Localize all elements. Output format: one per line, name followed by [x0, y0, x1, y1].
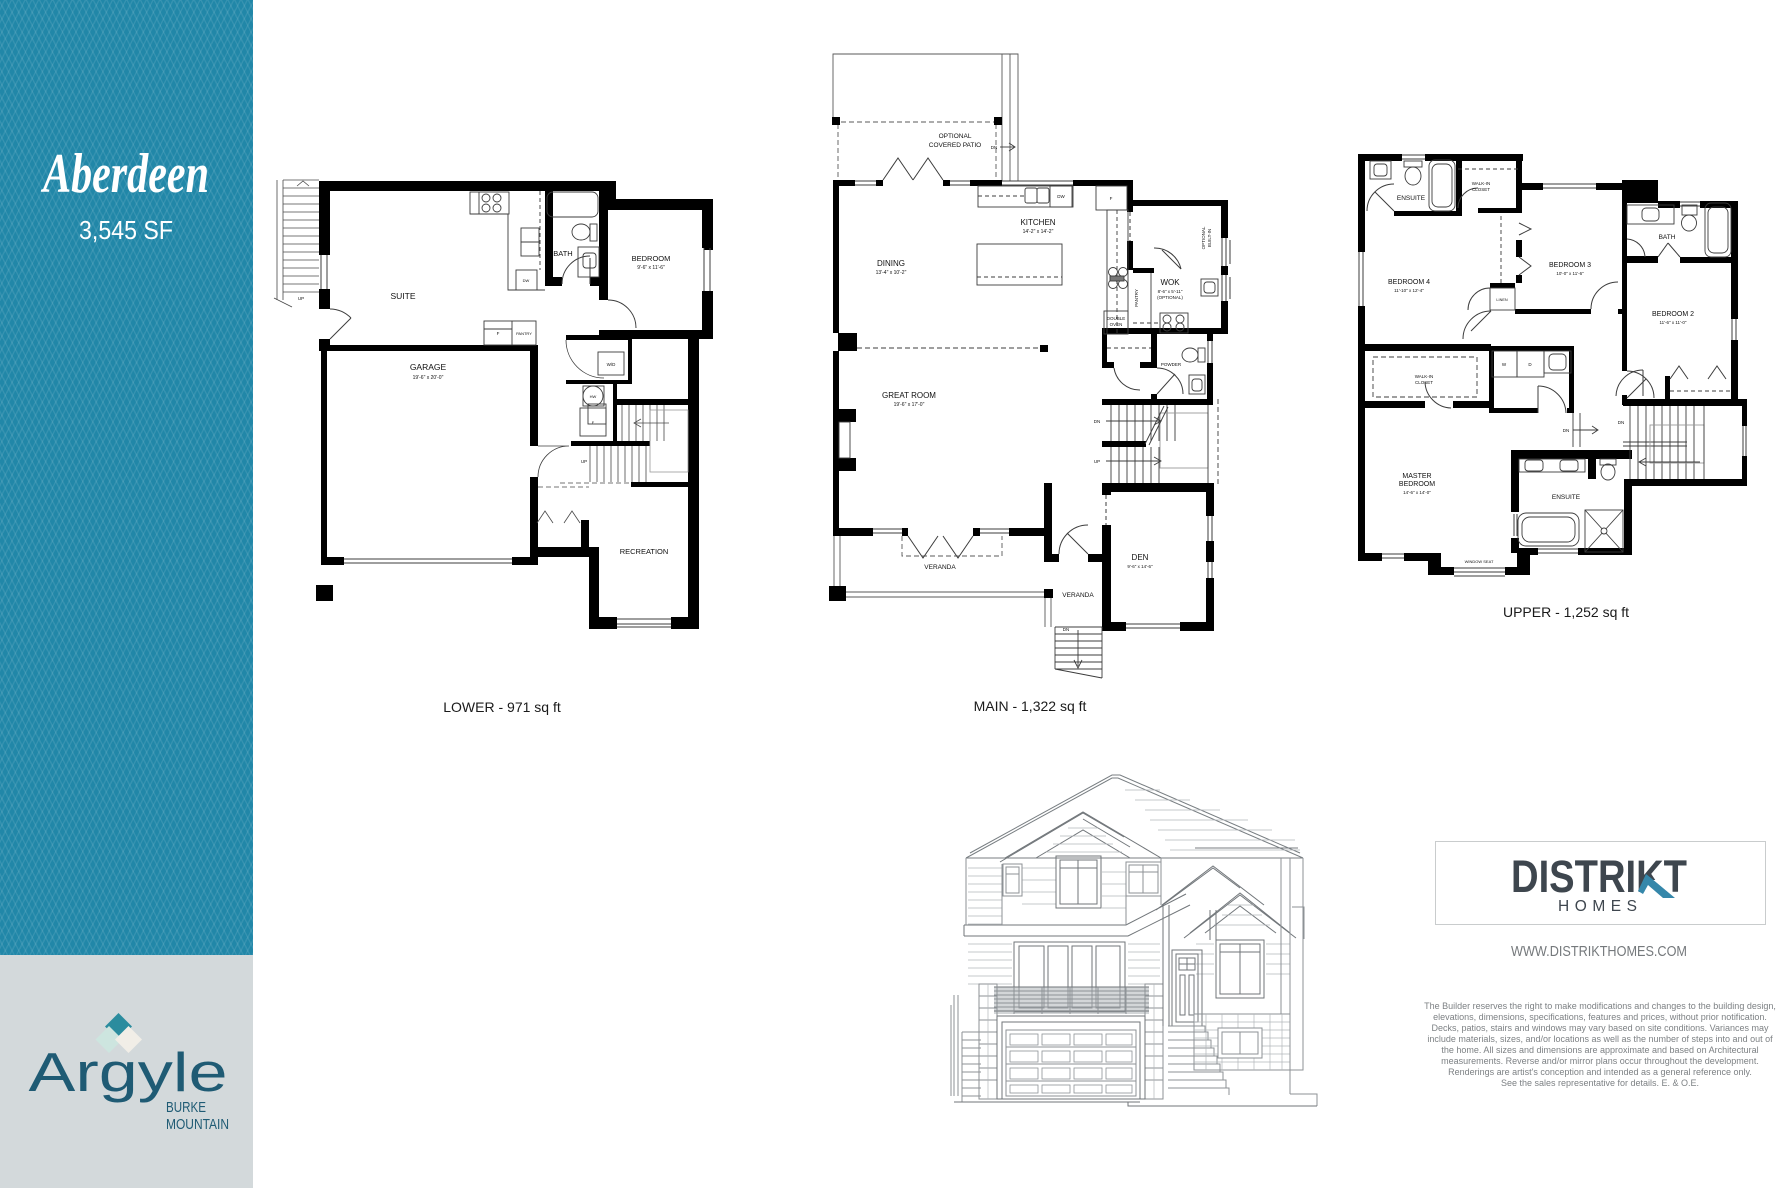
svg-text:11'-10" x 12'-4": 11'-10" x 12'-4" — [1394, 288, 1424, 293]
svg-text:CLOSET: CLOSET — [1415, 380, 1433, 385]
svg-text:WOK: WOK — [1160, 278, 1180, 287]
svg-text:9'-6" x 14'-6": 9'-6" x 14'-6" — [1127, 564, 1153, 569]
svg-text:ENSUITE: ENSUITE — [1552, 494, 1581, 501]
svg-text:14'-2" x 14'-2": 14'-2" x 14'-2" — [1023, 229, 1054, 235]
svg-text:BEDROOM 3: BEDROOM 3 — [1549, 262, 1591, 269]
svg-text:DOUBLE: DOUBLE — [1107, 316, 1126, 321]
svg-text:RECREATION: RECREATION — [620, 547, 669, 556]
svg-text:MASTER: MASTER — [1402, 473, 1431, 480]
svg-text:19'-6" x 20'-0": 19'-6" x 20'-0" — [413, 375, 444, 381]
svg-text:POWDER: POWDER — [1161, 362, 1182, 367]
svg-text:Aberdeen: Aberdeen — [41, 143, 209, 205]
svg-text:DN: DN — [1063, 627, 1070, 632]
svg-text:(OPTIONAL): (OPTIONAL) — [1157, 295, 1183, 300]
svg-text:3,545 SF: 3,545 SF — [79, 215, 173, 245]
svg-text:GREAT ROOM: GREAT ROOM — [882, 391, 936, 400]
svg-text:GARAGE: GARAGE — [410, 362, 447, 372]
svg-text:WALK-IN: WALK-IN — [1415, 374, 1434, 379]
svg-text:LINEN: LINEN — [1496, 298, 1507, 302]
svg-text:WWW.DISTRIKTHOMES.COM: WWW.DISTRIKTHOMES.COM — [1511, 943, 1687, 960]
svg-text:WINDOW SEAT: WINDOW SEAT — [1465, 559, 1494, 564]
svg-text:BEDROOM: BEDROOM — [632, 254, 671, 263]
svg-text:MOUNTAIN: MOUNTAIN — [166, 1116, 229, 1133]
svg-text:OVEN: OVEN — [1110, 322, 1123, 327]
svg-text:13'-4" x 10'-2": 13'-4" x 10'-2" — [876, 270, 907, 276]
svg-text:BATH: BATH — [553, 249, 572, 258]
svg-text:BEDROOM: BEDROOM — [1399, 481, 1435, 488]
svg-text:BEDROOM 4: BEDROOM 4 — [1388, 279, 1430, 286]
svg-text:VERANDA: VERANDA — [1062, 592, 1094, 599]
svg-text:10'-0" x 11'-6": 10'-0" x 11'-6" — [1556, 271, 1584, 276]
svg-text:CLOSET: CLOSET — [1472, 187, 1490, 192]
svg-text:OPTIONAL: OPTIONAL — [939, 133, 972, 140]
svg-text:ENSUITE: ENSUITE — [1397, 195, 1426, 202]
svg-text:UP: UP — [1094, 459, 1100, 464]
svg-text:HOMES: HOMES — [1558, 898, 1640, 915]
svg-text:PANTRY: PANTRY — [1134, 289, 1139, 307]
svg-text:BURKE: BURKE — [166, 1099, 206, 1116]
svg-text:DN: DN — [1094, 419, 1101, 424]
svg-text:DN: DN — [1618, 420, 1625, 425]
svg-text:DW: DW — [1057, 194, 1065, 199]
svg-text:19'-6" x 17'-0": 19'-6" x 17'-0" — [894, 402, 925, 408]
svg-text:DEN: DEN — [1132, 553, 1149, 562]
svg-text:Argyle: Argyle — [29, 1041, 228, 1103]
svg-text:VERANDA: VERANDA — [924, 564, 956, 571]
svg-text:W: W — [1502, 362, 1507, 367]
svg-text:BATH: BATH — [1659, 234, 1676, 241]
svg-text:PANTRY: PANTRY — [516, 331, 532, 336]
svg-text:DN: DN — [1563, 428, 1570, 433]
svg-text:UP: UP — [298, 296, 304, 301]
svg-text:DW: DW — [523, 278, 530, 283]
svg-text:DN: DN — [991, 145, 998, 150]
svg-text:BEDROOM 2: BEDROOM 2 — [1652, 311, 1694, 318]
svg-text:F: F — [497, 331, 500, 336]
svg-text:COVERED PATIO: COVERED PATIO — [929, 142, 982, 149]
svg-text:DINING: DINING — [877, 259, 905, 268]
svg-text:14'-6" x 14'-0": 14'-6" x 14'-0" — [1403, 490, 1431, 495]
svg-text:8'-6" x 5'-11": 8'-6" x 5'-11" — [1158, 289, 1183, 294]
svg-text:WALK-IN: WALK-IN — [1472, 181, 1491, 186]
svg-text:SUITE: SUITE — [390, 291, 415, 301]
svg-text:W/D: W/D — [607, 362, 616, 367]
svg-text:F: F — [1110, 196, 1113, 201]
svg-text:KITCHEN: KITCHEN — [1020, 218, 1055, 227]
svg-text:D: D — [1528, 362, 1532, 367]
svg-text:BUILT-IN: BUILT-IN — [1207, 229, 1212, 247]
svg-text:9'-6" x 11'-6": 9'-6" x 11'-6" — [637, 265, 665, 271]
svg-text:HW: HW — [590, 394, 597, 399]
svg-text:UP: UP — [581, 459, 587, 464]
svg-text:11'-6" x 11'-0": 11'-6" x 11'-0" — [1659, 320, 1686, 325]
svg-text:OPTIONAL: OPTIONAL — [1201, 226, 1206, 249]
